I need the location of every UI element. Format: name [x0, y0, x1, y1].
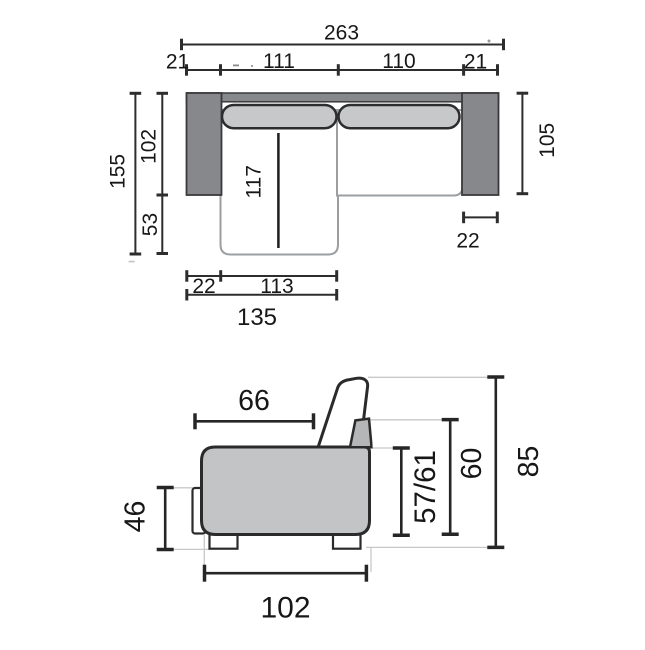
svg-text:22: 22 — [456, 229, 479, 252]
svg-text:135: 135 — [237, 304, 277, 331]
svg-text:102: 102 — [138, 129, 161, 164]
svg-text:111: 111 — [263, 50, 295, 73]
svg-text:57/61: 57/61 — [409, 450, 442, 524]
svg-text:85: 85 — [513, 446, 545, 478]
svg-text:110: 110 — [382, 50, 415, 73]
svg-text:53: 53 — [139, 213, 162, 236]
svg-text:46: 46 — [120, 501, 152, 533]
svg-text:117: 117 — [242, 165, 265, 198]
svg-text:105: 105 — [536, 123, 559, 158]
svg-text:66: 66 — [238, 385, 270, 417]
svg-text:102: 102 — [260, 592, 310, 625]
svg-text:263: 263 — [324, 22, 359, 45]
svg-text:60: 60 — [456, 448, 488, 480]
svg-text:21: 21 — [166, 50, 189, 73]
svg-text:155: 155 — [107, 154, 130, 189]
svg-text:21: 21 — [464, 50, 487, 73]
